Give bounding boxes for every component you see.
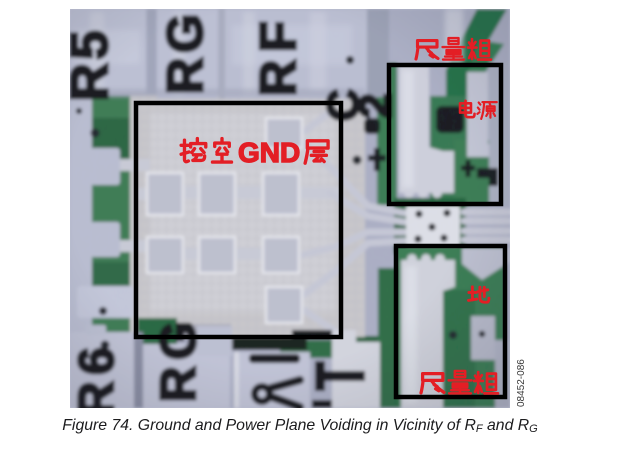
svg-text:08452-086: 08452-086 [516, 359, 527, 407]
svg-text:Figure 74. Ground and Power Pl: Figure 74. Ground and Power Plane Voidin… [62, 417, 538, 435]
svg-text:GND: GND [238, 137, 300, 168]
